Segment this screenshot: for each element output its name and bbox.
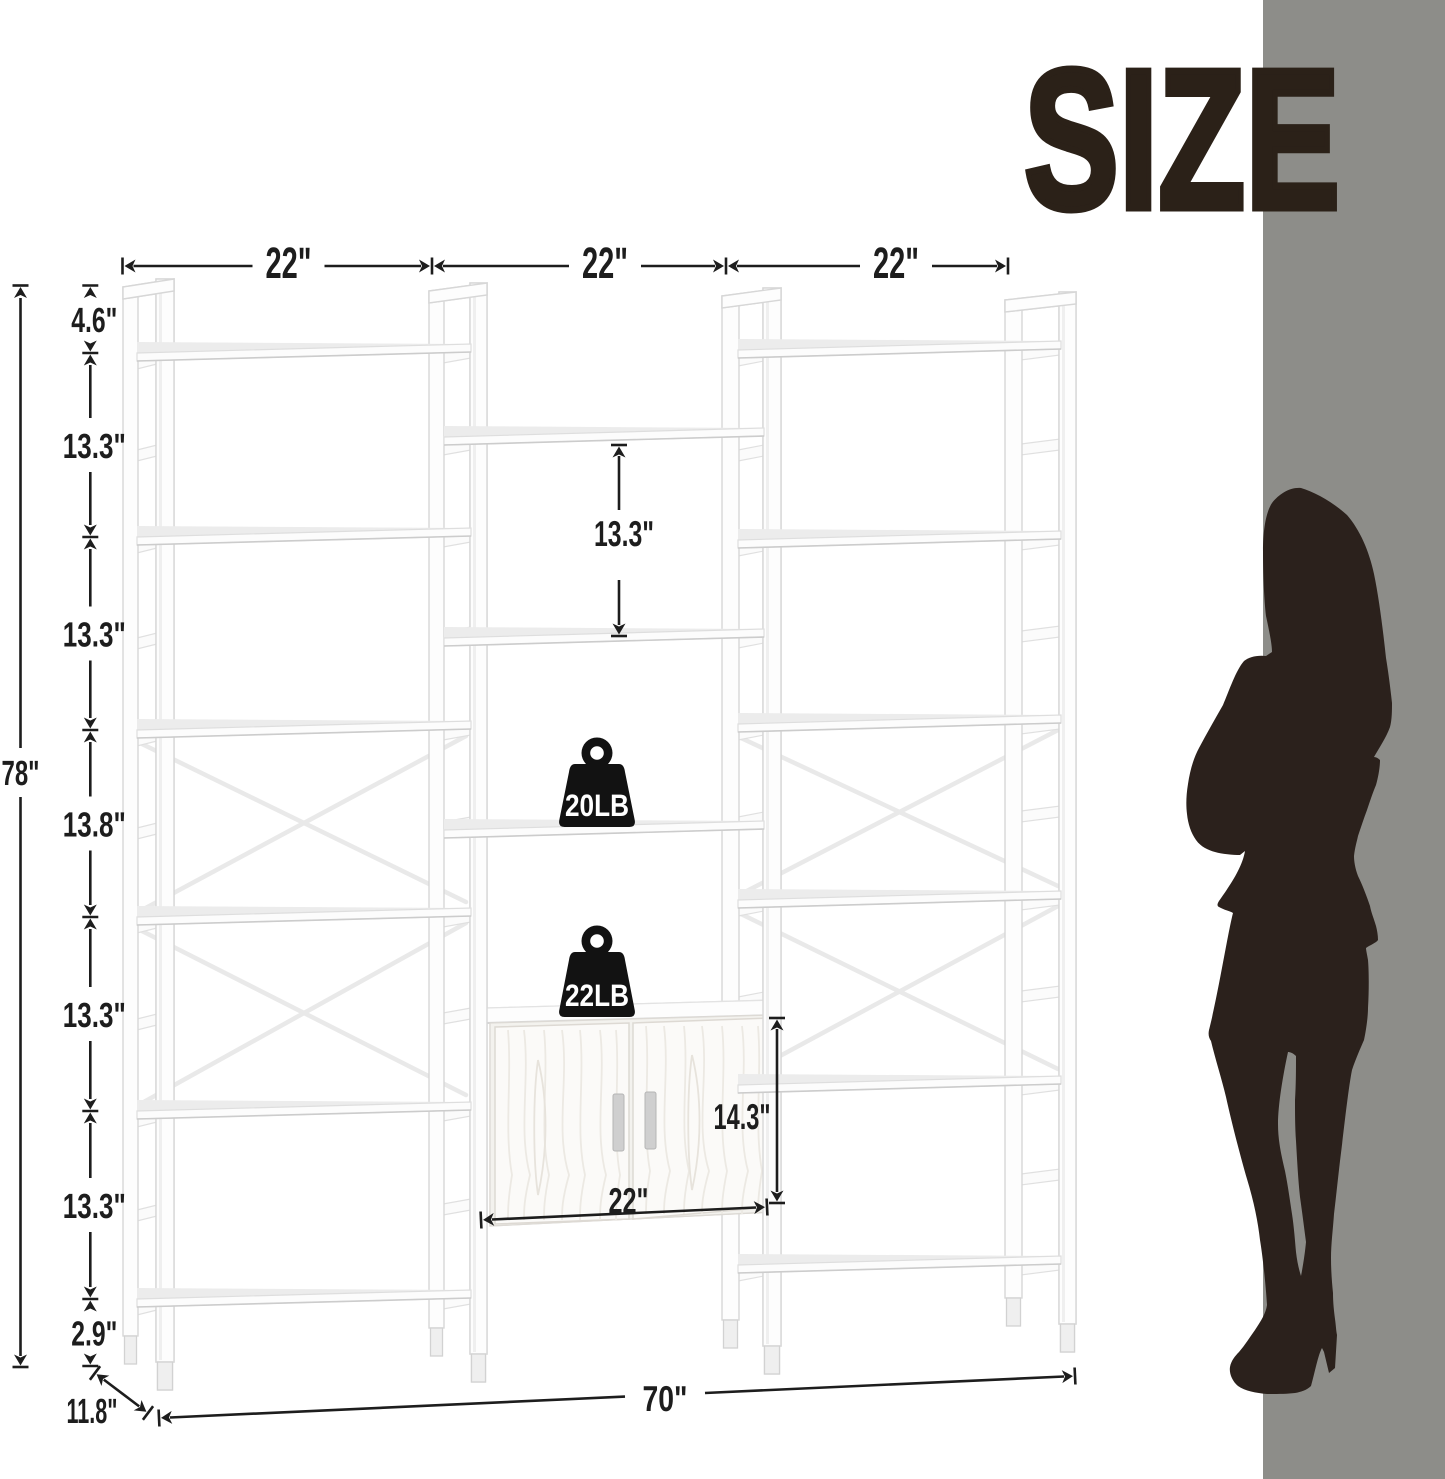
svg-text:22": 22" (609, 1180, 649, 1221)
svg-text:13.3": 13.3" (594, 513, 654, 554)
svg-text:22": 22" (873, 239, 919, 288)
svg-text:13.3": 13.3" (63, 996, 126, 1035)
svg-text:20LB: 20LB (565, 788, 629, 823)
svg-text:78": 78" (2, 754, 40, 793)
svg-text:13.3": 13.3" (63, 427, 126, 466)
svg-text:13.8": 13.8" (63, 806, 126, 845)
svg-text:22": 22" (266, 239, 312, 288)
svg-text:SIZE: SIZE (1024, 29, 1340, 251)
svg-text:13.3": 13.3" (63, 1187, 126, 1226)
svg-text:22LB: 22LB (565, 978, 629, 1013)
svg-text:70": 70" (643, 1378, 688, 1419)
svg-text:22": 22" (582, 239, 628, 288)
svg-text:11.8": 11.8" (67, 1392, 118, 1431)
svg-text:4.6": 4.6" (71, 301, 117, 340)
svg-text:14.3": 14.3" (714, 1096, 771, 1137)
svg-text:13.3": 13.3" (63, 616, 126, 655)
svg-text:2.9": 2.9" (71, 1315, 117, 1354)
